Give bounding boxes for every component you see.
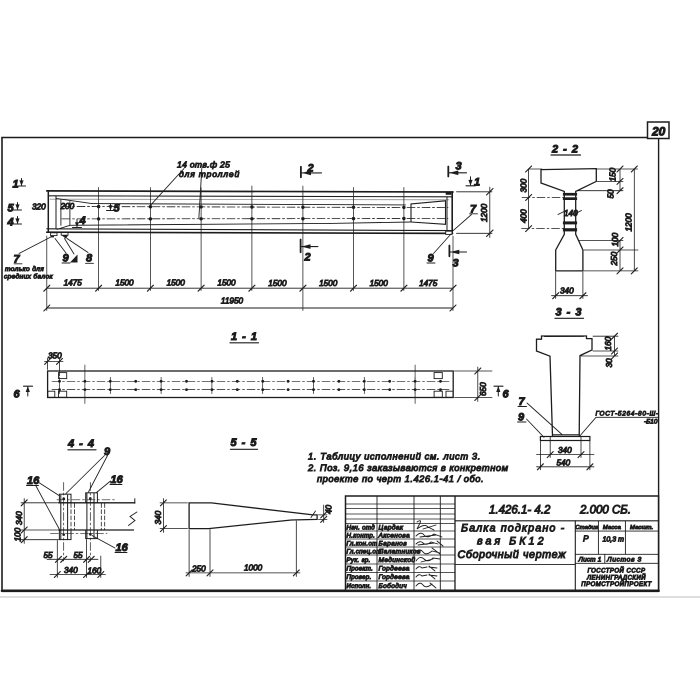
svg-text:Нач. отд: Нач. отд	[347, 525, 376, 532]
svg-text:100: 100	[14, 527, 23, 541]
svg-text:4: 4	[79, 215, 86, 227]
svg-text:20: 20	[651, 125, 666, 139]
svg-text:3: 3	[456, 161, 462, 173]
svg-text:5 - 5: 5 - 5	[231, 437, 258, 449]
svg-text:только для: только для	[5, 265, 44, 273]
svg-text:300: 300	[520, 178, 529, 192]
svg-text:2.000 СБ.: 2.000 СБ.	[579, 505, 631, 517]
svg-text:250: 250	[610, 251, 619, 266]
svg-text:1500: 1500	[115, 279, 134, 288]
svg-text:1500: 1500	[217, 279, 236, 288]
svg-text:320: 320	[32, 203, 46, 212]
svg-text:10,3 т: 10,3 т	[603, 537, 625, 544]
svg-text:3 - 3: 3 - 3	[556, 307, 583, 319]
svg-text:Баранов: Баранов	[379, 541, 408, 548]
svg-text:3: 3	[453, 258, 459, 270]
svg-text:1. Таблицу исполнений см. лис: 1. Таблицу исполнений см. лист 3.	[308, 451, 481, 462]
svg-text:средних балок: средних балок	[4, 273, 54, 281]
svg-text:Н.контр.: Н.контр.	[347, 533, 376, 540]
svg-text:Провер.: Провер.	[347, 574, 372, 581]
svg-text:Гордеева: Гордеева	[379, 573, 410, 581]
svg-text:Проект.: Проект.	[347, 566, 374, 573]
svg-text:1 - 1: 1 - 1	[231, 331, 258, 343]
svg-text:2: 2	[307, 163, 314, 175]
svg-text:340: 340	[560, 287, 574, 296]
svg-text:30: 30	[605, 358, 614, 368]
svg-text:340: 340	[558, 446, 572, 455]
svg-text:650: 650	[479, 382, 488, 396]
svg-text:1000: 1000	[244, 564, 263, 573]
svg-text:150: 150	[609, 167, 618, 181]
svg-text:540: 540	[557, 458, 571, 467]
svg-text:14 отв.ф 25: 14 отв.ф 25	[177, 159, 230, 169]
svg-text:50: 50	[607, 189, 616, 199]
svg-text:340: 340	[15, 511, 24, 525]
svg-text:1200: 1200	[480, 203, 489, 222]
svg-text:350: 350	[48, 352, 62, 361]
svg-text:Исполн.: Исполн.	[347, 583, 372, 590]
svg-text:340: 340	[154, 510, 163, 524]
svg-text:5: 5	[8, 203, 15, 215]
svg-text:1: 1	[474, 177, 480, 189]
svg-text:Масса: Масса	[603, 525, 622, 531]
svg-text:4: 4	[7, 217, 14, 229]
svg-text:2: 2	[304, 252, 311, 264]
svg-text:1475: 1475	[64, 279, 83, 288]
svg-text:Масшт.: Масшт.	[630, 525, 653, 531]
svg-text:для троллей: для троллей	[179, 169, 240, 179]
svg-text:Гл.спец.от: Гл.спец.от	[347, 549, 382, 556]
svg-text:Мединской: Мединской	[379, 556, 416, 564]
svg-text:Листов 3: Листов 3	[606, 556, 642, 563]
svg-text:1500: 1500	[319, 279, 338, 288]
svg-text:1200: 1200	[625, 213, 634, 232]
svg-text:Бободич: Бободич	[379, 582, 408, 590]
svg-text:1: 1	[13, 179, 19, 191]
svg-text:Гордеева: Гордеева	[379, 565, 410, 573]
svg-text:-Б10: -Б10	[644, 419, 658, 426]
svg-text:Лист 1: Лист 1	[578, 556, 602, 563]
svg-text:100: 100	[611, 232, 620, 246]
svg-text:Гл.кон.от: Гл.кон.от	[347, 541, 378, 548]
svg-text:Р: Р	[583, 534, 589, 544]
svg-text:6: 6	[14, 389, 21, 401]
svg-text:340: 340	[64, 566, 78, 575]
svg-text:250: 250	[191, 565, 206, 574]
svg-text:4 - 4: 4 - 4	[67, 438, 95, 450]
svg-text:ПРОМСТРОЙПРОЕКТ: ПРОМСТРОЙПРОЕКТ	[581, 580, 652, 588]
svg-text:ГОСТ-5264-80-Ш-: ГОСТ-5264-80-Ш-	[596, 411, 660, 418]
svg-text:140: 140	[564, 209, 578, 218]
svg-text:5: 5	[114, 203, 121, 215]
svg-text:1.426.1- 4.2: 1.426.1- 4.2	[489, 505, 551, 517]
svg-text:Аксенова: Аксенова	[378, 533, 410, 540]
svg-text:2 - 2: 2 - 2	[551, 144, 579, 156]
svg-text:2. Поз. 9,16 заказываются в ко: 2. Поз. 9,16 заказываются в конкретном	[307, 462, 509, 473]
svg-text:Стадия: Стадия	[575, 525, 598, 531]
svg-text:Рук. гр.: Рук. гр.	[347, 557, 371, 564]
svg-text:Балка подкрано -: Балка подкрано -	[461, 523, 565, 535]
svg-text:1500: 1500	[167, 279, 186, 288]
svg-text:проекте по черт 1.426.1-41 / о: проекте по черт 1.426.1-41 / обо.	[317, 473, 484, 484]
svg-text:6: 6	[503, 389, 510, 401]
svg-text:8: 8	[86, 253, 93, 265]
svg-text:Сборочный чертеж: Сборочный чертеж	[458, 549, 567, 561]
svg-text:11950: 11950	[221, 297, 244, 306]
svg-text:ГОССТРОЙ СССР: ГОССТРОЙ СССР	[588, 567, 646, 575]
svg-text:1475: 1475	[419, 279, 438, 288]
svg-text:55: 55	[44, 551, 54, 560]
svg-text:160: 160	[88, 567, 102, 576]
svg-text:1500: 1500	[268, 279, 287, 288]
svg-text:вая БК12: вая БК12	[477, 536, 547, 548]
svg-text:1500: 1500	[370, 279, 389, 288]
svg-text:160: 160	[604, 336, 613, 350]
svg-text:Цардак: Цардак	[379, 524, 404, 532]
svg-text:200: 200	[60, 202, 75, 211]
svg-text:40: 40	[325, 504, 334, 514]
svg-text:ЛЕНИНГРАДСКИЙ: ЛЕНИНГРАДСКИЙ	[586, 573, 646, 581]
svg-text:400: 400	[520, 209, 529, 223]
svg-text:55: 55	[74, 551, 84, 560]
